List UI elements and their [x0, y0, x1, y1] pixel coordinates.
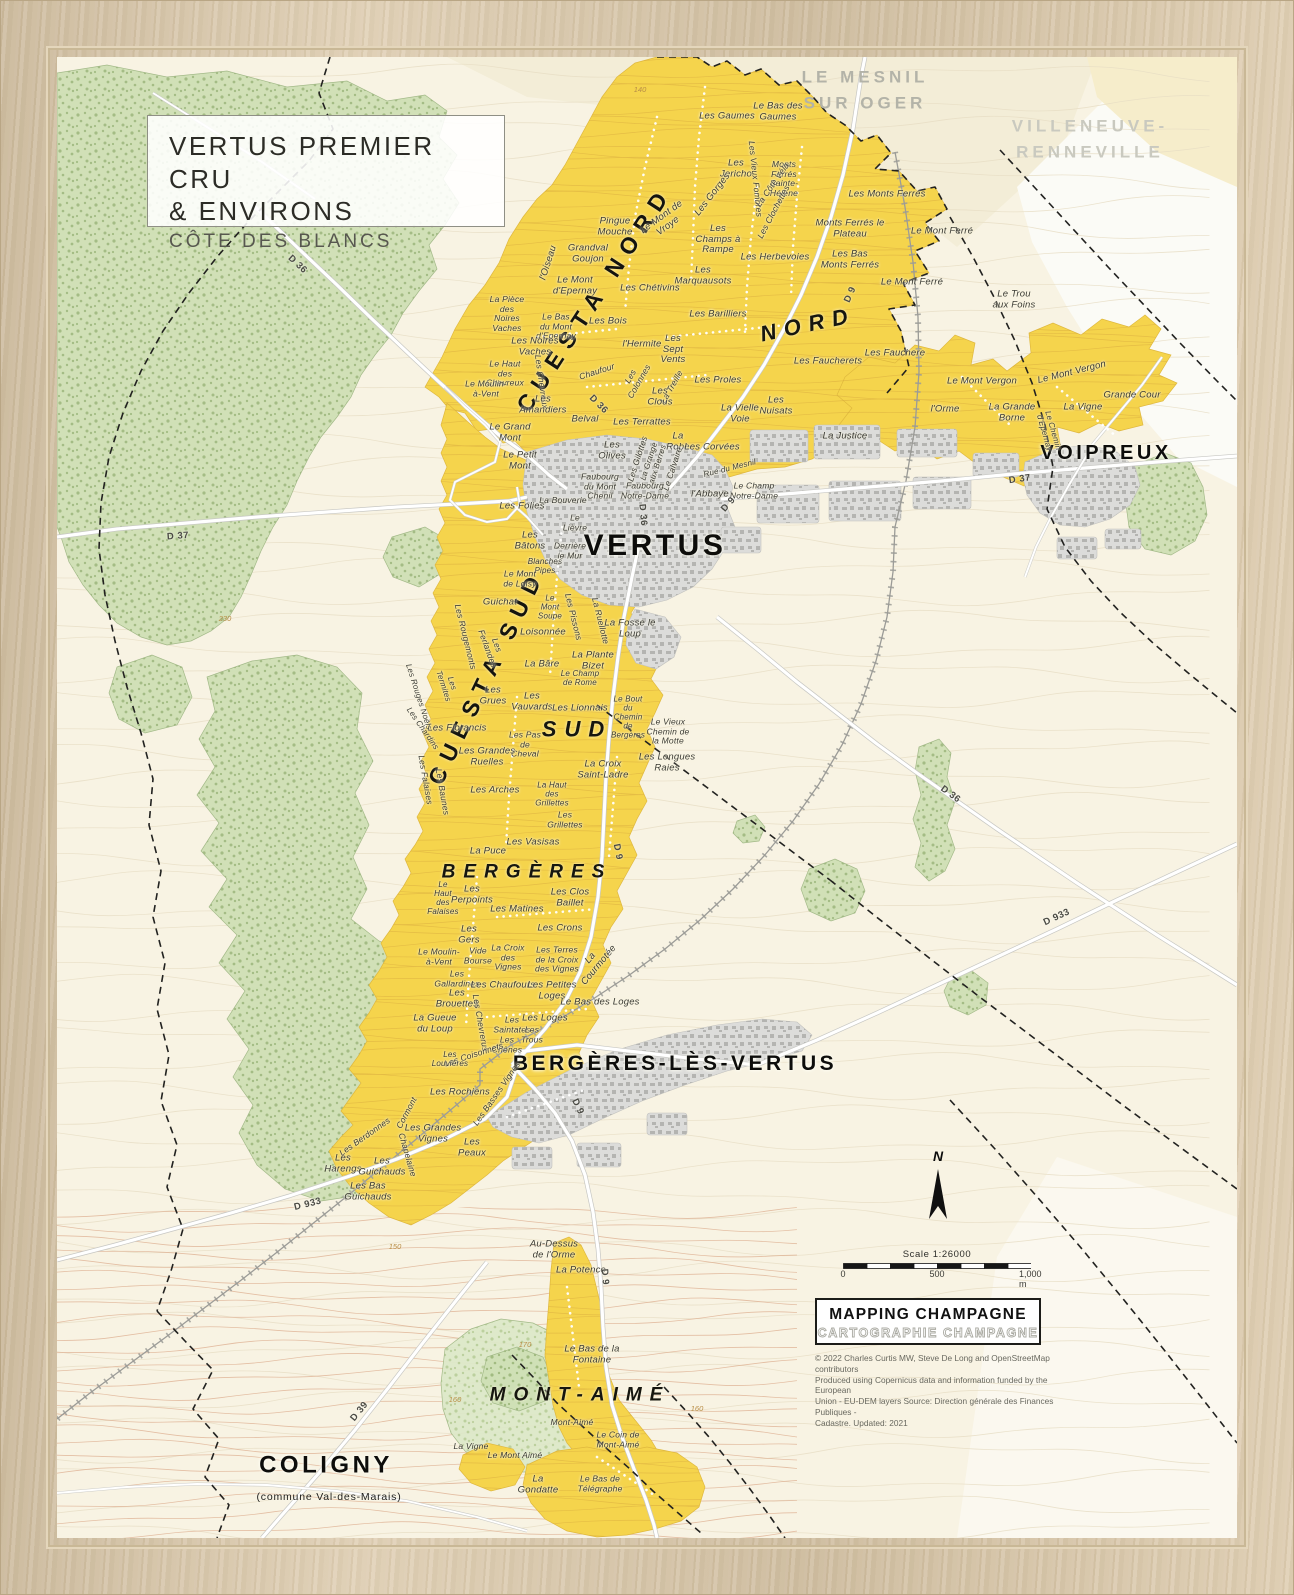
road-label: D 37 — [1008, 473, 1031, 487]
map-title-box: VERTUS PREMIER CRU & ENVIRONS CÔTE DES B… — [147, 115, 505, 227]
town-label: BERGÈRES-LÈS-VERTUS — [513, 1052, 837, 1076]
map-label: Les Grues — [480, 685, 507, 706]
map-label: Les Grillettes — [547, 810, 583, 829]
map-label: Les Marquausots — [674, 265, 731, 286]
map-label: Les Clochettes — [756, 184, 792, 241]
map-label: Les Grandes Ruelles — [459, 746, 516, 767]
road-label: D 36 — [636, 504, 649, 527]
map-label: Les Gilottes — [626, 435, 650, 483]
map-label: Les Loges — [522, 1014, 568, 1025]
map-label: Pingue Mouche — [598, 216, 633, 237]
map-label: 170 — [519, 1341, 532, 1349]
map-label: Les Gallardines — [434, 969, 479, 988]
map-label: Les Fauchere — [865, 349, 926, 360]
map-label: Les Colonnes — [617, 358, 652, 400]
map-label: Les Perpoints — [451, 884, 493, 905]
map-label: La Robe — [666, 431, 690, 452]
map-label: Le Mont Ferré — [881, 278, 943, 289]
map-label: (commune Val-des-Marais) — [256, 1492, 401, 1504]
scale-ticks: 0 500 1,000 m — [815, 1269, 1055, 1281]
map-label: La Grande Borne — [989, 402, 1036, 423]
map-label: Monts Ferrés Sainte- Hélène — [770, 160, 798, 198]
map-label: Les Bois — [589, 317, 627, 328]
map-label: Les Vauvards — [511, 691, 552, 712]
road-label: D 9 — [598, 1268, 610, 1285]
map-label: Les Terrattes — [613, 418, 671, 429]
map-label: Le Trou aux Foins — [993, 289, 1036, 310]
map-label: Les Herbevoies — [741, 253, 810, 264]
map-label: Les Bas Monts Ferrés — [821, 249, 879, 270]
map-label: Les Petites Loges — [527, 980, 576, 1001]
map-label: l'Hermite — [623, 340, 662, 351]
map-label: Les Florancis — [427, 724, 486, 735]
map-label: Blanches Pipes — [528, 558, 563, 576]
map-label: Les Terres de la Croix des Vignes — [535, 946, 579, 975]
map-label: Les Jericho — [720, 158, 752, 179]
map-label: Les Louvières — [432, 1051, 469, 1069]
map-label: Les Matines — [490, 905, 543, 916]
map-label: Les Arches — [470, 786, 519, 797]
scale-bar-block: Scale 1:26000 0 500 1,000 m — [815, 1249, 1055, 1281]
map-label: l'Abbaye — [691, 490, 729, 501]
map-label: Le Vieux Chemin de la Motte — [647, 718, 690, 747]
map-label: La Grange aux Berres — [639, 441, 669, 485]
map-title-line1: VERTUS PREMIER CRU — [169, 130, 504, 195]
map-label: Les Chevrerus — [470, 994, 489, 1053]
map-label: Monts Ferrés le Plateau — [816, 218, 885, 239]
map-label: La Gondatte — [518, 1474, 559, 1495]
map-label: Le Bas de Télégraphe — [577, 1474, 622, 1493]
map-label: Les Baunes — [433, 768, 451, 816]
map-label: Les Gaumes — [699, 112, 755, 123]
map-label: Les Sept Vents — [661, 334, 686, 366]
map-label: La Bâre — [525, 660, 560, 671]
road-label: D 933 — [1042, 907, 1072, 928]
map-label: 150 — [389, 1243, 402, 1251]
road-label: D 9 — [569, 1097, 586, 1116]
map-title-line2: & ENVIRONS — [169, 195, 504, 228]
map-label: Les Grandes Vignes — [405, 1123, 462, 1144]
map-label: Les Coisonnets — [443, 1041, 504, 1069]
map-label: Les Rouges Noëls — [403, 663, 433, 731]
map-label: Le Bas des Gaumes — [753, 101, 803, 122]
map-label: Le Haut des Falaises — [427, 881, 458, 917]
map-label: Le Chemin d'Epernay — [1034, 410, 1062, 454]
map-label: Les Basses Vignes — [471, 1060, 522, 1127]
map-label: Le Mont de Vroye — [639, 199, 692, 245]
map-label: Le Mont de Loisy — [503, 569, 536, 588]
map-label: Les Bâtons — [515, 530, 546, 551]
map-label: Le Bas de la Fontaine — [564, 1344, 619, 1365]
map-label: Le Bout du Chemin de Bergères — [611, 696, 645, 741]
map-label: Les Clous — [647, 386, 672, 407]
publisher-name-fr: CARTOGRAPHIE CHAMPAGNE — [817, 1326, 1039, 1340]
map-label: La Justice — [823, 432, 868, 443]
map-label: Les Vieux Fombres — [746, 140, 763, 217]
map-label: Les Folies — [499, 502, 544, 513]
map-label: Le Mont Ferré — [911, 227, 973, 238]
map-label: Les Berdonnes — [338, 1116, 392, 1158]
road-label: D 9 — [843, 285, 859, 304]
map-label: La Côte Véla — [754, 161, 791, 209]
map-label: Au-Dessus de l'Orme — [530, 1239, 578, 1260]
map-label: Belval — [571, 415, 598, 426]
map-label: Les Proles — [695, 376, 742, 387]
map-label: Les Gorges — [693, 172, 733, 219]
map-label: Les Champs à Rampe — [696, 224, 741, 256]
map-label: Les Ferlandes — [476, 625, 507, 669]
map-label: 160 — [691, 1405, 704, 1413]
map-label: La Plante Bizet — [572, 650, 614, 671]
map-label: Chapelaine — [396, 1132, 418, 1178]
map-label: La Haut des Grillettes — [535, 782, 569, 809]
map-label: Les Corvées — [684, 443, 740, 454]
map-label: Les Harengs — [324, 1153, 361, 1174]
map-label: La Potence — [556, 1266, 606, 1277]
road-label: D 39 — [349, 1400, 371, 1424]
map-label: Les Saintates — [493, 1015, 530, 1034]
map-label: Les Barilliers — [689, 310, 746, 321]
road-label: D 37 — [167, 531, 190, 543]
scale-tick-0: 0 — [840, 1269, 845, 1279]
map-label: La Vigne — [453, 1442, 488, 1452]
map-canvas: LE MESNIL SUR OGERVILLENEUVE- RENNEVILLE… — [57, 57, 1237, 1538]
map-label: Les Chardins — [404, 706, 440, 752]
copyright-line: Union - EU-DEM layers Source: Direction … — [815, 1396, 1061, 1418]
map-label: Les Brouettes — [436, 988, 478, 1009]
map-label: Le Mont Vergon — [1037, 359, 1108, 386]
map-label: Le Lièvre — [563, 513, 587, 532]
map-label: La Croix Saint-Ladre — [577, 759, 628, 780]
road-label: D 9 — [720, 495, 739, 514]
map-label: La Pièce des Noires Vaches — [490, 295, 525, 333]
map-label: Les Lionnais — [552, 704, 608, 715]
map-label: Le Grand Mont — [489, 422, 530, 443]
map-label: Le Mont Vergon — [947, 377, 1017, 388]
wood-frame: LE MESNIL SUR OGERVILLENEUVE- RENNEVILLE… — [0, 0, 1294, 1595]
map-label: Le Mont Soupe — [538, 595, 562, 622]
map-label: Les Termites — [434, 667, 461, 703]
map-label: La Croix des Vignes — [491, 944, 524, 973]
map-label: Les Olives — [598, 440, 626, 461]
scale-tick-500: 500 — [929, 1269, 944, 1279]
map-label: 230 — [219, 615, 232, 623]
map-label: NORD — [758, 303, 858, 347]
map-label: Les Bas Guichauds — [344, 1181, 391, 1202]
map-label: Les Monts Ferrés — [848, 190, 925, 201]
road-label: D 933 — [293, 1196, 323, 1213]
map-label: Les Vasisas — [506, 838, 559, 849]
map-label: Les Crons — [537, 924, 582, 935]
map-label: Guichat — [483, 598, 517, 609]
map-label: Les Faucherets — [794, 357, 862, 368]
map-label: La Fosse le Loup — [604, 618, 655, 639]
map-label: Grande Cour — [1103, 391, 1160, 402]
map-label: Le Bas des Loges — [560, 998, 639, 1009]
map-label: La Vigne — [1064, 403, 1103, 414]
map-label: Les Nuisats — [759, 395, 792, 416]
map-label: La Puce — [470, 847, 506, 858]
map-label: Mont-Aimé — [551, 1418, 594, 1428]
map-label: La Bouverie — [539, 496, 587, 506]
map-label: Les Pas de Cheval — [509, 731, 541, 760]
map-label: Grandval Goujon — [568, 243, 608, 264]
map-label: Les Chevreux — [532, 354, 549, 410]
road-label: D 36 — [586, 393, 609, 416]
map-label: Les Falaises — [416, 754, 434, 805]
map-label: Les Pissons — [563, 593, 584, 642]
map-label: Le Calvaire — [661, 446, 684, 492]
map-label: Le Mont d'Epernay — [553, 275, 597, 296]
publisher-name: MAPPING CHAMPAGNE — [817, 1306, 1039, 1324]
map-label: Les Rougemonts — [452, 603, 477, 670]
map-label: BERGÈRES — [442, 861, 613, 882]
map-label: Les Gers — [458, 924, 479, 945]
map-label: N — [933, 1149, 943, 1165]
map-label: Les Chaufours — [471, 981, 535, 992]
map-label: Vide Bourse — [464, 946, 492, 965]
map-label: LE MESNIL SUR OGER — [802, 65, 929, 116]
map-label-layer: LE MESNIL SUR OGERVILLENEUVE- RENNEVILLE… — [57, 57, 1237, 1538]
map-label: Rue du Mesnil — [703, 458, 757, 480]
map-label: SUD — [542, 718, 612, 743]
map-label: Les Noires Vaches — [511, 336, 558, 357]
map-label: CUESTA NORD — [512, 181, 678, 417]
map-label: Loisonnée — [520, 628, 566, 639]
town-label: VERTUS — [584, 529, 727, 563]
map-label: Le Moulin- à-Vent — [465, 379, 507, 398]
map-label: Le Champ Notre-Dame — [730, 481, 778, 500]
map-label: l'Oiseau — [538, 244, 559, 281]
scale-tick-1000: 1,000 m — [1019, 1269, 1043, 1289]
road-label: D 36 — [285, 254, 308, 277]
map-label: La Vielle Voie — [721, 403, 759, 424]
map-label: 140 — [634, 86, 647, 94]
map-label: La Courmotée — [571, 936, 619, 987]
map-label: Les Guichauds — [358, 1156, 405, 1177]
map-label: Le Champ de Rome — [561, 670, 600, 688]
map-label: Le Coin de Mont-Aimé — [596, 1430, 639, 1449]
town-label: VOIPREUX — [1040, 442, 1171, 464]
publisher-logo-box: MAPPING CHAMPAGNE CARTOGRAPHIE CHAMPAGNE — [815, 1298, 1041, 1345]
map-label: Les Rochiens — [430, 1088, 490, 1099]
map-label: Les Amandiers — [519, 394, 566, 415]
map-label: Chaufour — [578, 362, 616, 382]
map-label: 160 — [449, 1396, 462, 1404]
road-label: D 36 — [938, 784, 962, 806]
map-label: l'Orme — [931, 405, 960, 416]
map-label: MONT-AIMÉ — [490, 1384, 671, 1405]
road-label: D 9 — [610, 843, 624, 861]
map-label: Les Chétivins — [620, 284, 680, 295]
map-label: Les Trous — [521, 1025, 543, 1044]
map-label: Cormont — [395, 1096, 419, 1130]
map-label: Les Chênes — [492, 1035, 523, 1054]
map-label: Le Moulin- à-Vent — [418, 947, 460, 966]
map-label: Derrière le Mur — [554, 541, 586, 560]
map-label: CUESTA SUD — [423, 565, 550, 789]
copyright-block: © 2022 Charles Curtis MW, Steve De Long … — [815, 1353, 1061, 1428]
map-label: Le Bas du Mont d'Epernay — [536, 313, 576, 342]
map-label: La Treille — [659, 369, 685, 405]
map-label: Les Clos Baillet — [551, 887, 590, 908]
scale-text: Scale 1:26000 — [843, 1249, 1031, 1260]
map-label: Faubourg Notre-Dame — [621, 481, 669, 500]
copyright-line: Produced using Copernicus data and infor… — [815, 1375, 1061, 1397]
map-label: La Ruellotte — [590, 597, 611, 646]
map-label: La Gueue du Loup — [413, 1013, 456, 1034]
town-label: COLIGNY — [259, 1453, 393, 1480]
copyright-line: Cadastre. Updated: 2021 — [815, 1418, 1061, 1429]
map-label: Le Haut des Chevreux — [486, 360, 524, 389]
map-label: Les Peaux — [458, 1137, 486, 1158]
copyright-line: © 2022 Charles Curtis MW, Steve De Long … — [815, 1353, 1061, 1375]
map-label: Le Petit Mont — [503, 450, 537, 471]
map-label: Les Longues Raies — [639, 752, 696, 773]
map-label: Le Mont Aimé — [488, 1451, 543, 1461]
map-label: Faubourg du Mont Chenil — [581, 473, 619, 502]
map-label: VILLENEUVE- RENNEVILLE — [1012, 114, 1168, 165]
map-subtitle: CÔTE DES BLANCS — [169, 231, 504, 253]
